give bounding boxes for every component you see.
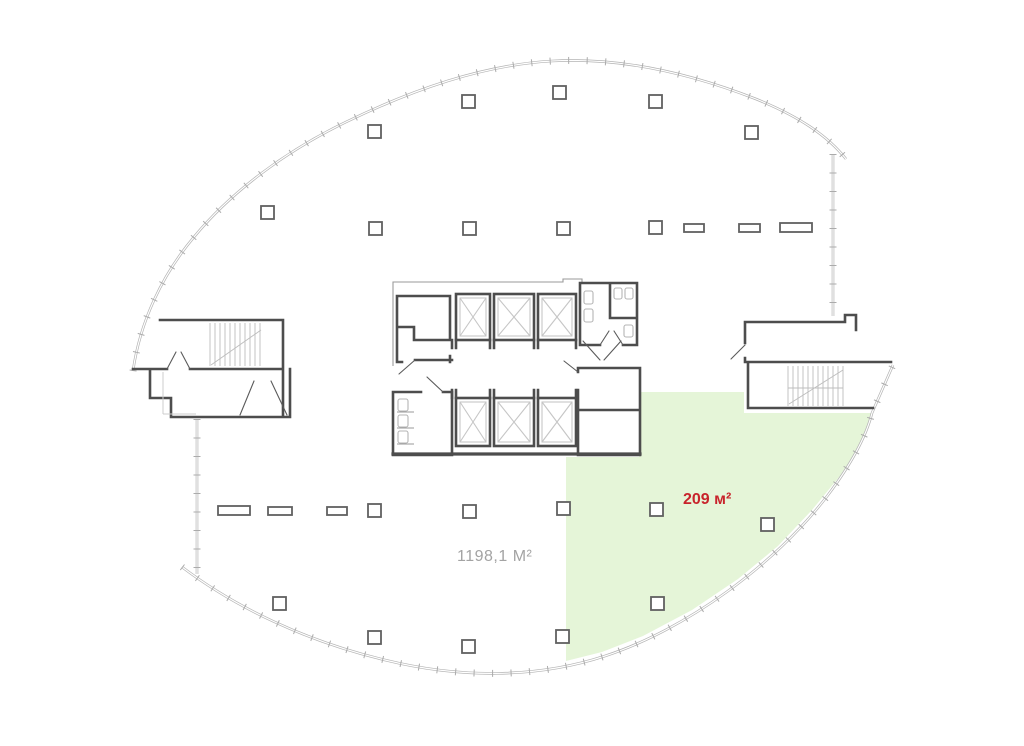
column-bar bbox=[268, 507, 292, 515]
column-square bbox=[761, 518, 774, 531]
wc-north bbox=[580, 283, 637, 345]
elevator-shaft bbox=[538, 294, 576, 340]
column-square bbox=[368, 125, 381, 138]
floor-plan-canvas: 209 м² 1198,1 М² bbox=[0, 0, 1024, 746]
door-stair-west bbox=[167, 352, 190, 369]
column-square bbox=[463, 505, 476, 518]
elevator-shaft bbox=[494, 398, 534, 446]
column-square bbox=[261, 206, 274, 219]
column-square bbox=[557, 502, 570, 515]
column-bar bbox=[780, 223, 812, 232]
column-bar bbox=[739, 224, 760, 232]
building-outline bbox=[133, 60, 893, 673]
wc-south bbox=[393, 377, 452, 455]
floor-plan-svg: 209 м² 1198,1 М² bbox=[0, 0, 1024, 746]
column-square bbox=[557, 222, 570, 235]
column-square bbox=[556, 630, 569, 643]
column-square bbox=[553, 86, 566, 99]
unit-209-highlight[interactable] bbox=[566, 392, 871, 661]
stair-treads bbox=[210, 323, 260, 366]
column-square bbox=[273, 597, 286, 610]
elevator-shaft bbox=[538, 398, 576, 446]
column-square bbox=[463, 222, 476, 235]
door-stair-east bbox=[731, 345, 745, 359]
highlighted-area-label: 209 м² bbox=[683, 491, 731, 508]
column-square bbox=[649, 221, 662, 234]
column-square bbox=[745, 126, 758, 139]
elevator-shaft bbox=[456, 398, 490, 446]
column-square bbox=[368, 504, 381, 517]
door-vestibule-west bbox=[240, 381, 287, 415]
stairwell-west bbox=[133, 320, 290, 417]
column-bar bbox=[327, 507, 347, 515]
elevator-shaft bbox=[494, 294, 534, 340]
total-area-label: 1198,1 М² bbox=[457, 548, 533, 565]
column-square bbox=[462, 95, 475, 108]
stair-treads bbox=[788, 366, 843, 406]
column-square bbox=[368, 631, 381, 644]
stairwell-east bbox=[731, 315, 891, 408]
column-square bbox=[650, 503, 663, 516]
core bbox=[393, 279, 640, 455]
elevator-shaft bbox=[456, 294, 490, 340]
column-square bbox=[649, 95, 662, 108]
column-bar bbox=[684, 224, 704, 232]
column-bar bbox=[218, 506, 250, 515]
column-square bbox=[369, 222, 382, 235]
column-square bbox=[651, 597, 664, 610]
utility-room-north bbox=[397, 296, 452, 374]
column-square bbox=[462, 640, 475, 653]
